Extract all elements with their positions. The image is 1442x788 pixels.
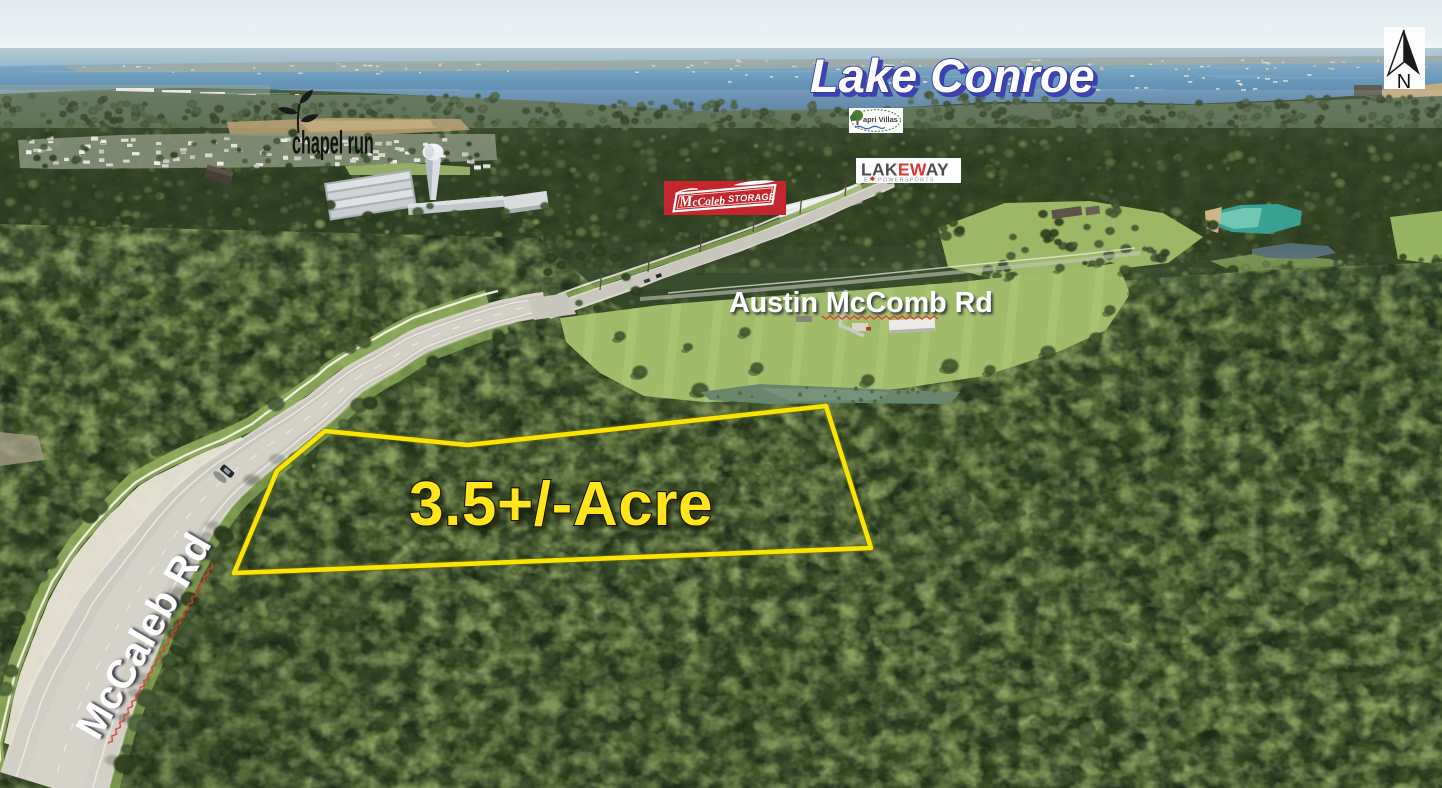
svg-text:POWERSPORTS: POWERSPORTS <box>878 178 935 184</box>
svg-text:chapel run: chapel run <box>292 126 374 161</box>
svg-text:LAKEWAY: LAKEWAY <box>861 160 949 180</box>
svg-text:E: E <box>864 178 869 184</box>
svg-text:3.5+/-Acre: 3.5+/-Acre <box>409 470 713 539</box>
svg-text:apri Villas: apri Villas <box>863 115 898 124</box>
svg-text:N: N <box>1397 71 1411 93</box>
svg-text:Lake Conroe: Lake Conroe <box>810 49 1095 102</box>
svg-text:Austin McComb Rd: Austin McComb Rd <box>729 287 993 319</box>
